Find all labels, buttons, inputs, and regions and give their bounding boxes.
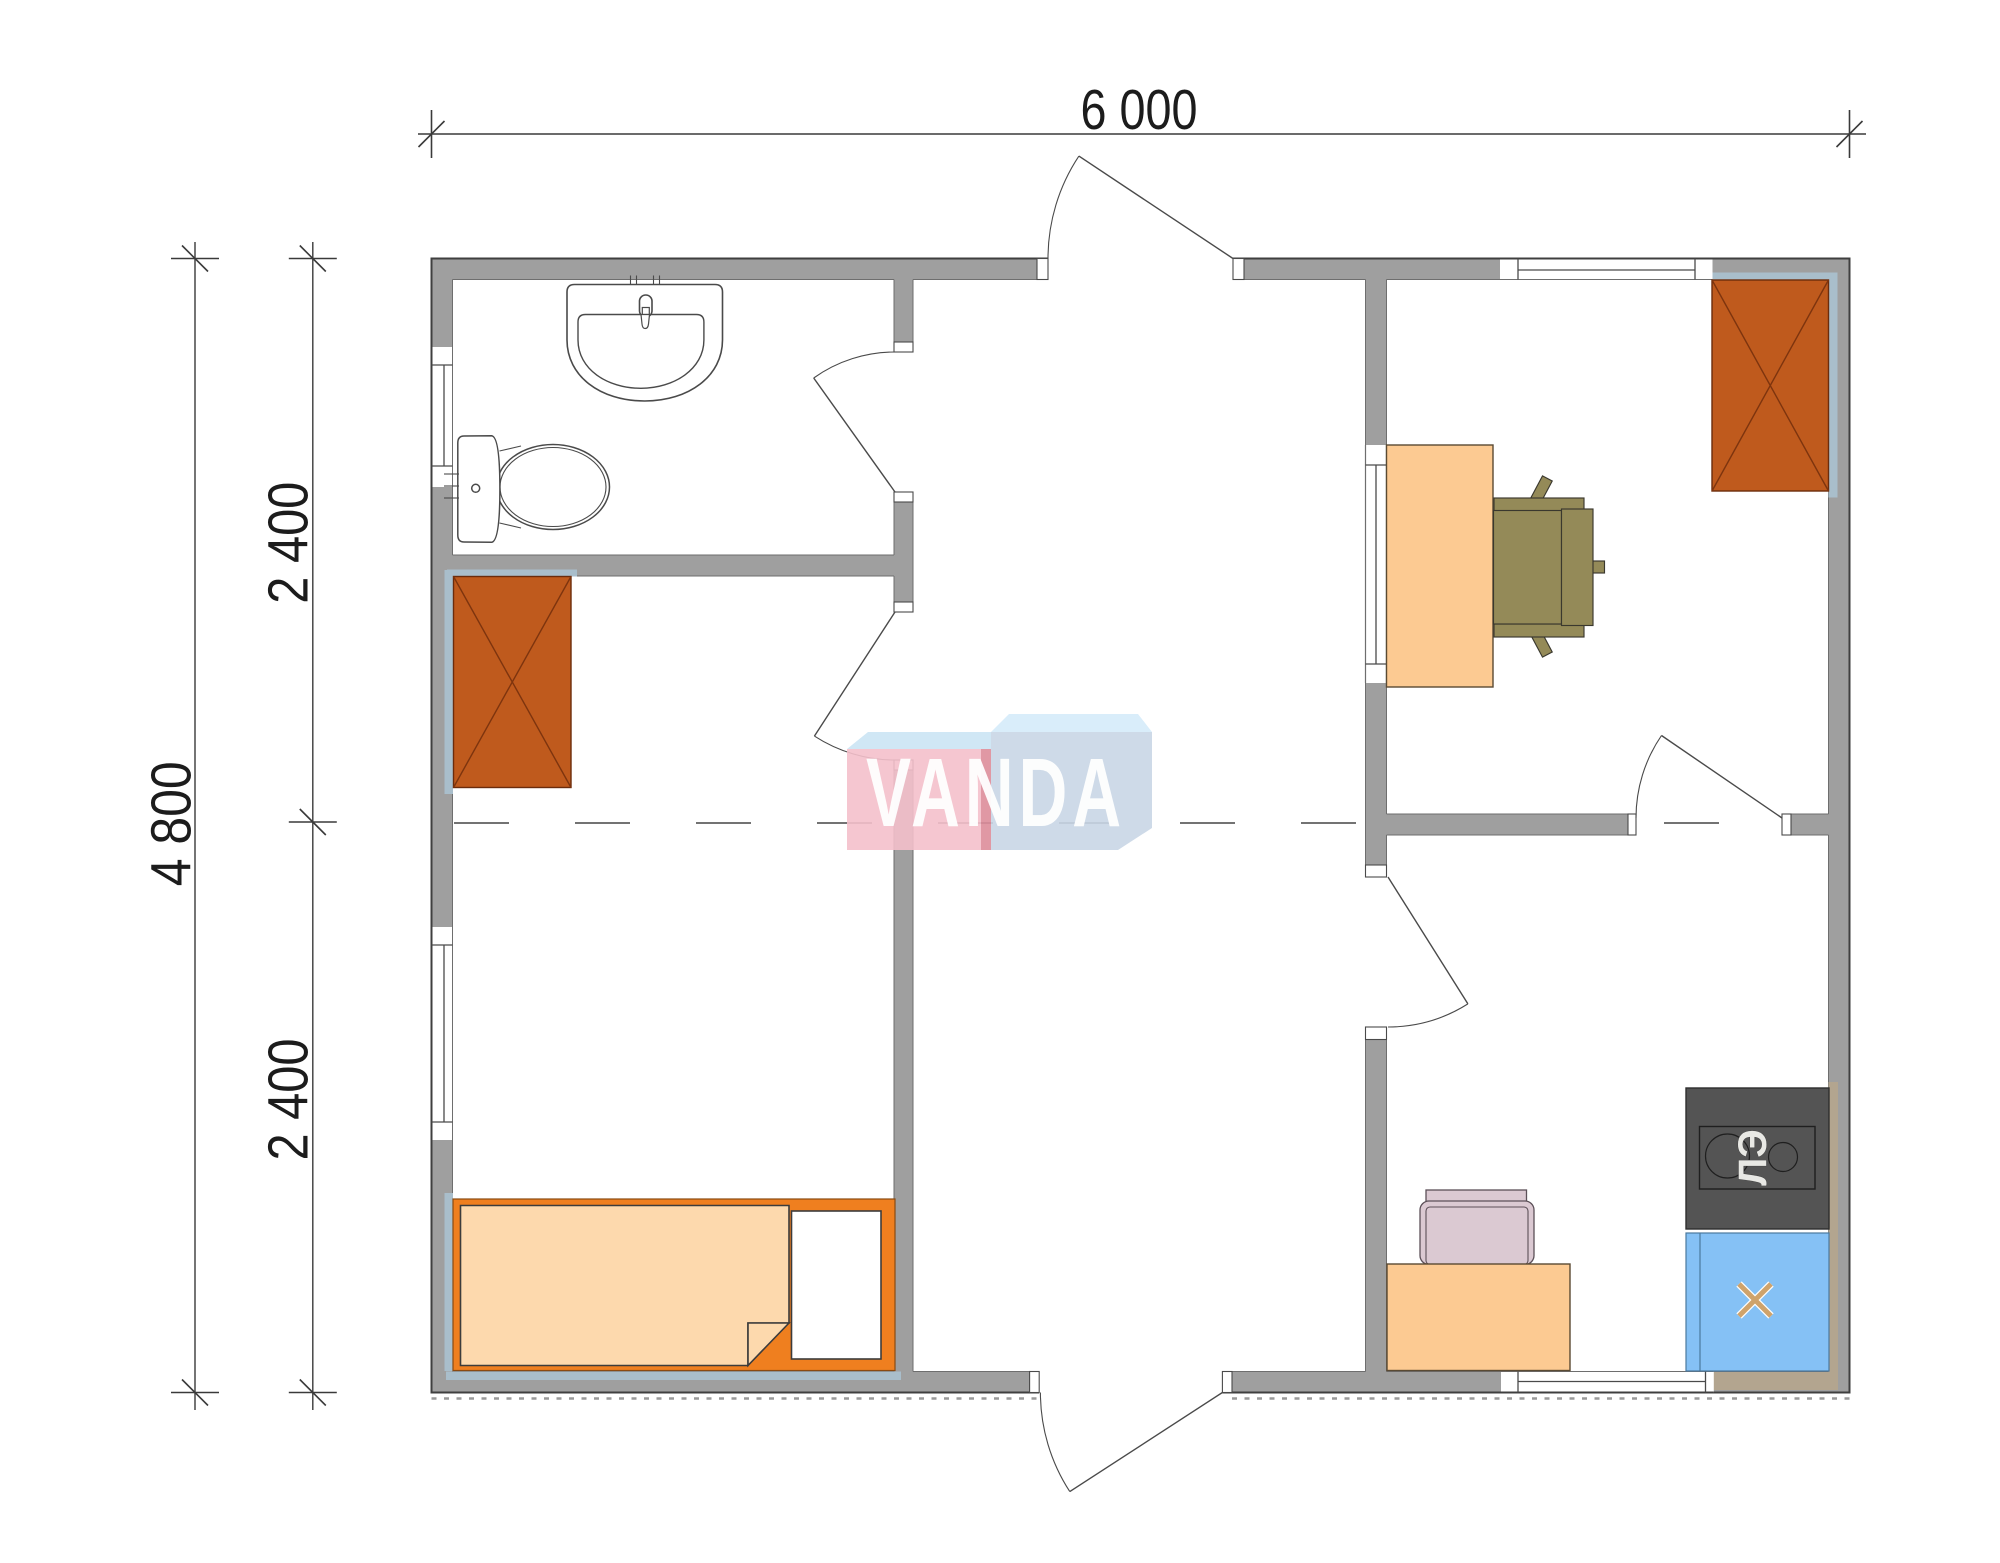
svg-text:6 000: 6 000 [1081,78,1198,142]
svg-text:ЛЭ: ЛЭ [1731,1129,1775,1186]
svg-text:2 400: 2 400 [257,482,321,604]
svg-text:2 400: 2 400 [257,1039,321,1161]
svg-text:VANDA: VANDA [866,738,1126,847]
svg-text:4 800: 4 800 [140,761,204,886]
